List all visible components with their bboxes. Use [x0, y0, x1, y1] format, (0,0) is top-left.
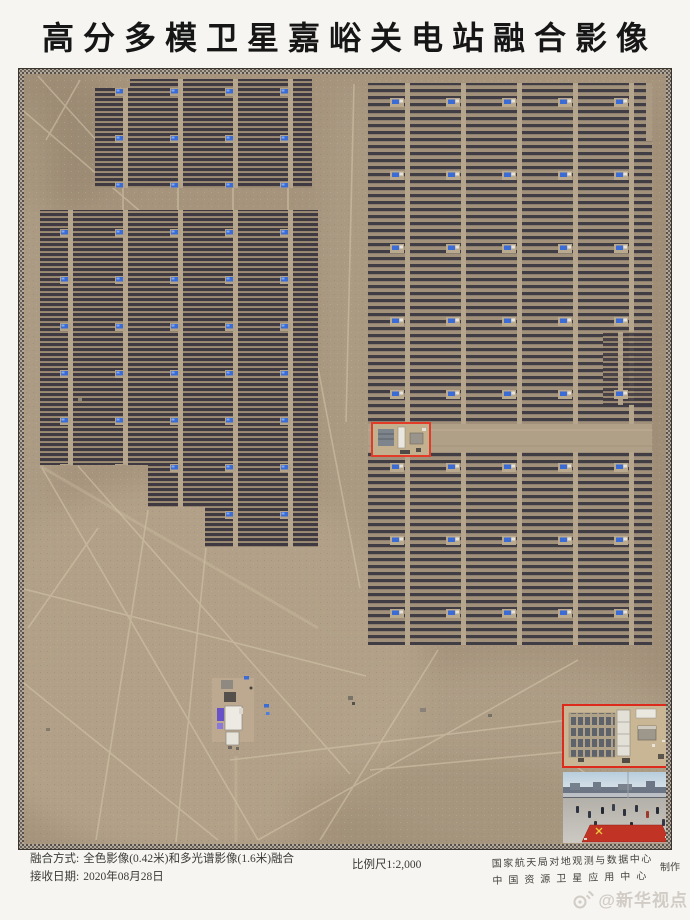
fusion-method-label: 融合方式:	[30, 853, 79, 865]
receive-date-value: 2020年08月28日	[83, 871, 164, 883]
watermark-text: @新华视点	[598, 886, 688, 911]
red-flag-carpet	[582, 825, 670, 842]
watermark: @新华视点	[571, 886, 688, 911]
weibo-icon	[571, 887, 595, 911]
receive-date-line: 接收日期:2020年08月28日	[30, 869, 294, 887]
solar-array-left-upper	[95, 79, 312, 188]
satellite-image	[18, 68, 672, 850]
image-metadata: 融合方式:全色影像(0.42米)和多光谱影像(1.6米)融合 接收日期:2020…	[30, 851, 294, 886]
poster-page: 高分多模卫星嘉峪关电站融合影像	[0, 0, 690, 920]
credit-line2: 中国资源卫星应用中心	[492, 867, 653, 887]
substation-highlight-box	[372, 423, 430, 456]
map-scale: 比例尺1:2,000	[352, 856, 421, 872]
credit-suffix: 制作	[660, 858, 680, 874]
solar-array-right	[368, 83, 652, 645]
inset-substation-aerial	[563, 705, 670, 767]
fusion-method-line: 融合方式:全色影像(0.42米)和多光谱影像(1.6米)融合	[30, 851, 294, 869]
fusion-method-value: 全色影像(0.42米)和多光谱影像(1.6米)融合	[83, 853, 294, 865]
receive-date-label: 接收日期:	[30, 871, 79, 883]
satellite-map-frame	[18, 68, 672, 850]
page-title: 高分多模卫星嘉峪关电站融合影像	[0, 13, 690, 59]
credit-block: 国家航天局对地观测与数据中心 中国资源卫星应用中心 制作	[492, 849, 681, 887]
inset-ground-photo	[563, 772, 670, 843]
